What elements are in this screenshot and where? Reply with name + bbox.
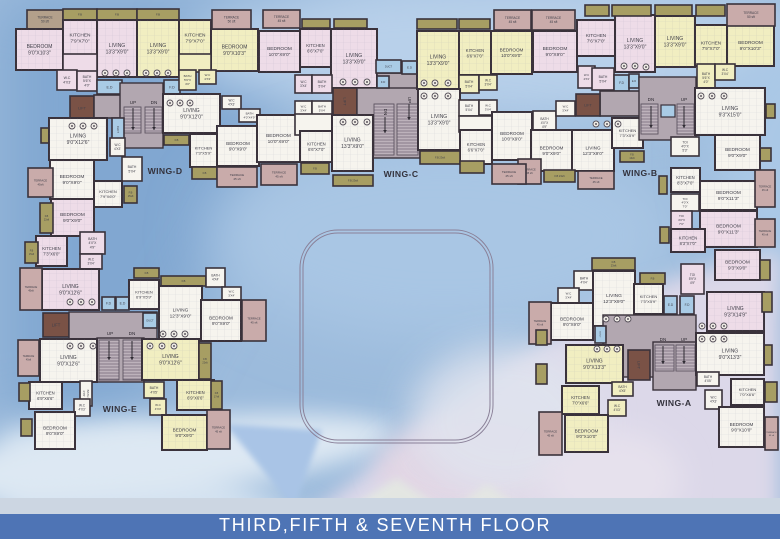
svg-text:UP: UP (681, 97, 687, 102)
svg-text:4'0": 4'0" (703, 80, 708, 84)
svg-text:4'X3': 4'X3' (710, 400, 717, 404)
svg-text:5'X4': 5'X4' (465, 84, 473, 88)
svg-text:F.B 23sft: F.B 23sft (348, 178, 358, 182)
svg-text:LIVING: LIVING (173, 308, 189, 314)
svg-text:4'0": 4'0" (185, 82, 190, 86)
svg-text:5'X4': 5'X4' (318, 84, 326, 88)
svg-text:LIVING: LIVING (60, 355, 77, 361)
svg-text:45 sft: 45 sft (547, 433, 554, 437)
svg-text:DN: DN (151, 100, 158, 105)
svg-text:4'X5': 4'X5' (82, 390, 86, 397)
svg-text:KITCHEN: KITCHEN (676, 175, 694, 180)
svg-text:LIVING: LIVING (183, 108, 200, 114)
svg-text:9'0"X9'0": 9'0"X9'0" (728, 153, 747, 159)
svg-text:E.D: E.D (107, 85, 113, 89)
svg-text:F.B: F.B (612, 260, 616, 264)
svg-text:F.B: F.B (175, 138, 179, 142)
svg-text:23sft: 23sft (611, 264, 617, 268)
svg-text:THIRD,FIFTH & SEVENTH FLOOR: THIRD,FIFTH & SEVENTH FLOOR (219, 515, 551, 535)
svg-text:F.B: F.B (182, 279, 186, 283)
svg-text:BEDROOM: BEDROOM (266, 133, 291, 139)
svg-text:9'0"X10'3": 9'0"X10'3" (28, 50, 51, 56)
svg-text:50 sft: 50 sft (228, 20, 236, 24)
svg-text:BEDROOM: BEDROOM (716, 190, 741, 196)
svg-text:BEDROOM: BEDROOM (267, 46, 292, 52)
svg-text:F.D: F.D (106, 302, 112, 306)
svg-text:13'3"X9'0": 13'3"X9'0" (106, 49, 129, 55)
svg-text:F.D: F.D (685, 303, 690, 307)
svg-text:KITCHEN: KITCHEN (679, 235, 697, 240)
svg-text:5'X4': 5'X4' (128, 169, 136, 173)
svg-text:F.B 23sft: F.B 23sft (435, 155, 445, 159)
svg-text:22sft: 22sft (202, 361, 208, 364)
svg-text:4'0"X4'9": 4'0"X4'9" (244, 115, 256, 119)
svg-text:3'X4': 3'X4' (562, 108, 569, 112)
svg-text:45 sft: 45 sft (233, 177, 241, 181)
svg-text:12'3"X9'0": 12'3"X9'0" (583, 151, 604, 156)
svg-text:13'3"X9'0": 13'3"X9'0" (624, 44, 647, 50)
svg-text:4'0": 4'0" (84, 83, 90, 87)
svg-text:BEDROOM: BEDROOM (43, 425, 67, 430)
svg-text:KITCHEN: KITCHEN (467, 142, 485, 147)
svg-text:15sft: 15sft (29, 253, 35, 256)
svg-text:12'3"X9'0": 12'3"X9'0" (603, 299, 625, 305)
svg-text:22sft: 22sft (44, 218, 50, 221)
svg-text:BEDROOM: BEDROOM (540, 145, 564, 150)
svg-text:7'3"X6'0": 7'3"X6'0" (43, 251, 60, 256)
svg-text:UP: UP (407, 97, 412, 103)
svg-text:9'3"X9'0": 9'3"X9'0" (728, 266, 747, 272)
svg-text:TERRACE: TERRACE (534, 319, 547, 323)
svg-text:50 sft: 50 sft (747, 15, 755, 19)
svg-text:DUCT: DUCT (385, 64, 393, 68)
svg-text:LIVING: LIVING (150, 43, 167, 49)
svg-text:TERRACE: TERRACE (25, 285, 38, 289)
svg-text:E.D: E.D (668, 303, 674, 307)
svg-text:45 sft: 45 sft (275, 175, 283, 179)
svg-text:9'0"X9'0": 9'0"X9'0" (46, 431, 65, 436)
svg-text:4'X5': 4'X5' (150, 390, 158, 394)
svg-text:9'0"X11'3": 9'0"X11'3" (718, 196, 740, 202)
svg-text:45 sft: 45 sft (509, 20, 517, 24)
svg-text:F.B: F.B (78, 13, 82, 17)
svg-text:DN: DN (648, 97, 655, 102)
svg-text:LIFT: LIFT (637, 361, 642, 370)
svg-text:F.B: F.B (651, 276, 655, 280)
svg-text:9'0"X9'0": 9'0"X9'0" (62, 180, 81, 186)
svg-text:13'3"X9'0": 13'3"X9'0" (428, 120, 451, 126)
svg-text:LIVING: LIVING (430, 55, 447, 61)
svg-text:12'3"X9'0": 12'3"X9'0" (170, 314, 192, 320)
svg-text:BEDROOM: BEDROOM (730, 422, 754, 427)
svg-text:6'6"X7'0": 6'6"X7'0" (308, 147, 325, 152)
svg-text:7'0"X6'6": 7'0"X6'6" (740, 392, 757, 397)
svg-text:45sft: 45sft (37, 182, 43, 186)
svg-text:F.B: F.B (145, 271, 149, 275)
svg-text:16sft: 16sft (629, 157, 635, 160)
svg-text:4'9": 4'9" (542, 125, 547, 129)
svg-text:UP: UP (130, 100, 136, 105)
svg-text:7'9"X6'0": 7'9"X6'0" (100, 194, 117, 199)
svg-text:BEDROOM: BEDROOM (738, 40, 763, 46)
svg-text:13'3"X9'0": 13'3"X9'0" (427, 61, 450, 67)
svg-text:KITCHEN: KITCHEN (586, 33, 606, 38)
svg-text:7'9"X7'0": 7'9"X7'0" (702, 46, 721, 51)
svg-text:LIFT: LIFT (78, 106, 86, 110)
svg-text:F.B: F.B (156, 13, 160, 17)
svg-text:45 sft: 45 sft (278, 19, 286, 23)
svg-text:4'X5': 4'X5' (619, 389, 626, 393)
svg-text:DUCT: DUCT (599, 331, 601, 338)
svg-text:10'0"X9'0": 10'0"X9'0" (269, 52, 291, 58)
svg-text:LIVING: LIVING (109, 43, 126, 49)
svg-text:9'0"X10'0": 9'0"X10'0" (576, 434, 597, 439)
svg-text:9'0"X13'3": 9'0"X13'3" (719, 355, 742, 361)
svg-text:9'0"X12'0": 9'0"X12'0" (180, 114, 203, 120)
svg-text:45 sft: 45 sft (762, 188, 769, 192)
svg-text:45 sft: 45 sft (593, 180, 600, 184)
svg-text:KITCHEN: KITCHEN (184, 33, 206, 39)
svg-text:BEDROOM: BEDROOM (60, 174, 85, 180)
svg-text:WING-A: WING-A (657, 398, 692, 408)
svg-text:9'0"X11'3": 9'0"X11'3" (718, 230, 740, 236)
svg-text:5'X4': 5'X4' (466, 108, 473, 112)
svg-text:6'9"X5'9": 6'9"X5'9" (136, 295, 153, 300)
svg-text:4'X3': 4'X3' (79, 408, 86, 412)
svg-text:9'0"X9'0": 9'0"X9'0" (545, 52, 564, 58)
svg-text:LIFT: LIFT (584, 103, 592, 107)
svg-text:LIFT: LIFT (52, 323, 61, 328)
svg-text:3'X4': 3'X4' (722, 72, 729, 76)
svg-text:5'X4': 5'X4' (599, 79, 607, 83)
svg-text:4'X5': 4'X5' (705, 379, 712, 383)
svg-text:9'0"X13'3": 9'0"X13'3" (583, 365, 606, 371)
svg-text:KITCHEN: KITCHEN (466, 48, 484, 53)
svg-text:45 sft: 45 sft (537, 323, 544, 327)
svg-text:9'0"X12'6": 9'0"X12'6" (159, 360, 182, 366)
svg-text:BEDROOM: BEDROOM (60, 212, 85, 218)
svg-text:LIVING: LIVING (70, 134, 87, 140)
svg-text:9'0"X9'0": 9'0"X9'0" (563, 322, 582, 327)
svg-text:10'0"X9'0": 10'0"X9'0" (268, 139, 290, 145)
svg-text:LIVING: LIVING (627, 38, 644, 44)
svg-text:7'3"X5'9": 7'3"X5'9" (196, 151, 213, 156)
svg-text:8'3"X7'0": 8'3"X7'0" (677, 180, 694, 185)
svg-text:6'9"X6'6": 6'9"X6'6" (187, 395, 204, 400)
svg-text:F.B: F.B (203, 171, 207, 175)
svg-text:DN: DN (129, 331, 136, 336)
svg-text:4'X3': 4'X3' (155, 407, 162, 411)
svg-text:10'0"X9'0": 10'0"X9'0" (502, 137, 523, 142)
svg-text:4'9": 4'9" (690, 281, 695, 285)
svg-text:TERRACE: TERRACE (759, 185, 772, 189)
svg-text:15sft: 15sft (128, 194, 134, 198)
svg-text:45 sft: 45 sft (505, 174, 513, 178)
svg-text:LIVING: LIVING (722, 106, 739, 112)
svg-text:4'X3': 4'X3' (114, 147, 121, 151)
svg-text:6'6"X7'0": 6'6"X7'0" (468, 147, 485, 152)
svg-text:WING-D: WING-D (148, 166, 183, 176)
svg-text:WING-C: WING-C (384, 169, 419, 179)
svg-text:13'3"X9'0": 13'3"X9'0" (147, 49, 170, 55)
svg-text:KITCHEN: KITCHEN (571, 395, 589, 400)
svg-text:6'9"X6'6": 6'9"X6'6" (37, 396, 54, 401)
svg-text:LIVING: LIVING (667, 36, 684, 42)
svg-text:4'X3': 4'X3' (63, 81, 71, 85)
svg-text:KITCHEN: KITCHEN (36, 390, 54, 395)
svg-text:45 sft: 45 sft (526, 171, 533, 175)
svg-text:E.D: E.D (120, 302, 126, 306)
svg-text:DUCT: DUCT (146, 318, 154, 322)
svg-text:LIVING: LIVING (727, 306, 744, 312)
svg-text:7'3"X5'9": 7'3"X5'9" (641, 299, 658, 304)
svg-text:BEDROOM: BEDROOM (725, 260, 750, 266)
svg-text:45sft: 45sft (28, 289, 34, 293)
svg-text:4'9": 4'9" (90, 245, 96, 249)
svg-text:WING-B: WING-B (623, 168, 658, 178)
svg-text:9'0"X12'6": 9'0"X12'6" (59, 290, 82, 296)
svg-text:BEDROOM: BEDROOM (222, 45, 248, 51)
svg-text:LIVING: LIVING (586, 359, 603, 365)
svg-text:KITCHEN: KITCHEN (701, 40, 721, 45)
svg-text:9'0"X9'0": 9'0"X9'0" (63, 218, 82, 224)
svg-text:LIVING: LIVING (162, 354, 179, 360)
svg-text:4'X4': 4'X4' (212, 278, 219, 282)
svg-text:KITCHEN: KITCHEN (307, 141, 325, 146)
svg-text:DN: DN (383, 109, 388, 116)
svg-text:E.D: E.D (407, 66, 413, 70)
svg-text:9'3"X14'9": 9'3"X14'9" (724, 312, 747, 318)
svg-text:WING-E: WING-E (103, 404, 137, 414)
svg-text:3'X4': 3'X4' (228, 294, 235, 298)
svg-text:BEDROOM: BEDROOM (543, 46, 568, 52)
svg-text:10'0"X9'0": 10'0"X9'0" (501, 53, 522, 58)
svg-text:DUCT: DUCT (116, 126, 120, 134)
svg-text:F.D: F.D (619, 81, 624, 85)
svg-text:4'X3': 4'X3' (228, 103, 235, 107)
svg-text:BEDROOM: BEDROOM (27, 44, 53, 50)
svg-text:KITCHEN: KITCHEN (306, 43, 324, 48)
svg-text:13'3"X9'0": 13'3"X9'0" (341, 144, 364, 150)
svg-text:45 sft: 45 sft (215, 429, 222, 433)
svg-text:45 sft: 45 sft (251, 320, 258, 324)
svg-text:BEDROOM: BEDROOM (209, 315, 233, 320)
svg-text:LIVING: LIVING (344, 138, 361, 144)
svg-text:9'0"X12'6": 9'0"X12'6" (67, 140, 90, 146)
svg-text:F.B: F.B (313, 166, 317, 170)
svg-text:LIVING: LIVING (585, 145, 600, 150)
svg-text:UP: UP (681, 337, 687, 342)
svg-text:BEDROOM: BEDROOM (716, 224, 741, 230)
svg-text:BEDROOM: BEDROOM (560, 316, 584, 321)
svg-text:7'0"X6'6": 7'0"X6'6" (572, 400, 589, 405)
svg-text:DN: DN (660, 337, 667, 342)
svg-text:7'9"X7'0": 7'9"X7'0" (185, 39, 204, 45)
svg-text:BEDROOM: BEDROOM (500, 131, 524, 136)
svg-text:TERRACE: TERRACE (759, 229, 772, 233)
svg-text:45 sft: 45 sft (769, 434, 775, 437)
svg-text:4'X3': 4'X3' (204, 77, 211, 81)
svg-text:7'0": 7'0" (683, 204, 688, 208)
svg-text:F.B: F.B (115, 13, 119, 17)
svg-text:7'6"X7'0": 7'6"X7'0" (587, 39, 606, 44)
svg-text:9'0"X9'0": 9'0"X9'0" (542, 151, 561, 156)
svg-text:F.B: F.B (129, 191, 133, 195)
svg-text:9'0"X9'0": 9'0"X9'0" (175, 433, 194, 438)
svg-text:BEDROOM: BEDROOM (173, 427, 197, 432)
svg-text:3'X4': 3'X4' (88, 262, 95, 266)
svg-text:9'0"X12'6": 9'0"X12'6" (57, 361, 80, 367)
svg-text:17sft: 17sft (214, 395, 220, 398)
svg-text:6'6"X7'0": 6'6"X7'0" (467, 53, 484, 58)
svg-text:KITCHEN: KITCHEN (69, 33, 91, 39)
svg-text:F.B 23sft: F.B 23sft (554, 174, 564, 178)
svg-text:LIVING: LIVING (722, 349, 739, 355)
svg-text:LIVING: LIVING (431, 114, 448, 120)
svg-text:4'X3': 4'X3' (614, 408, 621, 412)
svg-text:5'X4': 5'X4' (319, 108, 326, 112)
svg-text:9'0"X9'0": 9'0"X9'0" (229, 147, 248, 152)
svg-text:9'0"X10'3": 9'0"X10'3" (223, 51, 246, 57)
svg-text:BEDROOM: BEDROOM (500, 47, 524, 52)
svg-text:BEDROOM: BEDROOM (725, 147, 750, 153)
svg-text:7'0": 7'0" (679, 222, 684, 226)
svg-text:E.D: E.D (632, 79, 636, 83)
svg-text:7'3"X5'9": 7'3"X5'9" (620, 133, 637, 138)
svg-text:3'X4': 3'X4' (300, 84, 307, 88)
svg-text:45 sft: 45 sft (550, 20, 558, 24)
svg-text:TERRACE: TERRACE (766, 431, 777, 434)
svg-text:45sft: 45sft (26, 358, 32, 361)
svg-text:45 sft: 45 sft (762, 233, 769, 237)
svg-text:F.D: F.D (169, 85, 175, 89)
svg-text:7'9"X7'0": 7'9"X7'0" (70, 39, 89, 45)
svg-text:BEDROOM: BEDROOM (226, 141, 250, 146)
svg-text:4'X3': 4'X3' (583, 77, 590, 81)
svg-text:3'X4': 3'X4' (485, 83, 492, 87)
svg-text:LIFT: LIFT (343, 97, 348, 106)
svg-text:9'0"X10'0": 9'0"X10'0" (731, 428, 752, 433)
svg-text:9'3"X15'0": 9'3"X15'0" (719, 112, 742, 118)
svg-text:BEDROOM: BEDROOM (575, 428, 599, 433)
svg-text:9'0"X9'0": 9'0"X9'0" (212, 321, 231, 326)
svg-text:13'3"X9'0": 13'3"X9'0" (664, 42, 687, 48)
svg-text:KITCHEN: KITCHEN (42, 246, 60, 251)
svg-text:6'6"X7'0": 6'6"X7'0" (307, 48, 324, 53)
svg-text:8'3"X7'0": 8'3"X7'0" (680, 241, 697, 246)
svg-text:LIVING: LIVING (346, 53, 363, 59)
svg-text:50 sft: 50 sft (41, 20, 49, 24)
svg-text:3'X4': 3'X4' (300, 108, 307, 112)
svg-text:KITCHEN: KITCHEN (186, 390, 204, 395)
svg-text:4'X4': 4'X4' (581, 281, 588, 285)
svg-text:W.C: W.C (64, 76, 71, 80)
svg-text:3'X4': 3'X4' (485, 107, 492, 111)
svg-text:3'X4': 3'X4' (565, 296, 572, 300)
svg-text:LIVING: LIVING (606, 293, 622, 299)
svg-text:LIVING: LIVING (62, 284, 79, 290)
svg-text:5'3": 5'3" (682, 149, 687, 153)
svg-text:UP: UP (107, 331, 113, 336)
svg-text:9'0"X10'3": 9'0"X10'3" (740, 46, 762, 52)
svg-text:13'3"X9'0": 13'3"X9'0" (343, 59, 366, 65)
